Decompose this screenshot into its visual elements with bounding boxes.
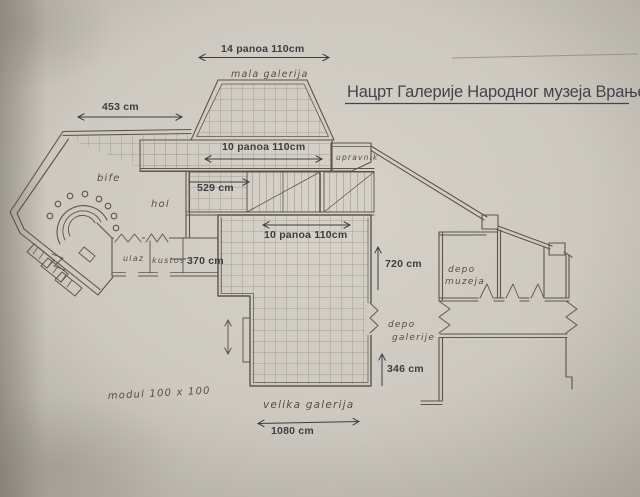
room-label-depo-galerije-line2: galerije (392, 333, 435, 343)
dim-label-east-upper: 720 cm (385, 258, 422, 270)
room-label-depo-muzeja-line1: depo (448, 265, 475, 275)
room-label-ulaz: ulaz (123, 254, 144, 263)
room-label-hol: hol (151, 199, 170, 210)
dim-label-entry: 370 cm (187, 255, 224, 267)
dim-label-upper-panels: 10 panoa 110cm (222, 141, 305, 153)
dim-label-lower-panels: 10 panoa 110cm (264, 229, 347, 241)
title-block: Нацрт Галерије Народног музеја Врање (345, 83, 640, 104)
dim-label-east-lower: 346 cm (387, 363, 424, 375)
room-label-velika-galerija: velika galerija (263, 399, 354, 411)
room-label-depo-muzeja-line2: muzeja (445, 277, 485, 287)
dim-label-gallery-bottom: 1080 cm (271, 425, 314, 437)
room-label-depo-galerije-line1: depo (388, 320, 415, 330)
room-label-bife: bife (97, 173, 121, 184)
room-label-upravnik: upravnik (336, 153, 378, 162)
floor-plan-photo: 14 panoa 110cm 453 cm 10 panoa 110cm 529… (0, 0, 640, 497)
dim-label-left-wing: 453 cm (102, 101, 139, 113)
dim-label-top-panels: 14 panoa 110cm (221, 43, 304, 55)
room-label-kustos: kustos (152, 256, 185, 265)
room-label-mala-galerija: mala galerija (231, 69, 309, 80)
plan-title: Нацрт Галерије Народног музеја Врање (347, 83, 640, 101)
floor-plan-drawing: 14 panoa 110cm 453 cm 10 panoa 110cm 529… (0, 0, 640, 497)
dim-label-hall: 529 cm (197, 182, 234, 194)
